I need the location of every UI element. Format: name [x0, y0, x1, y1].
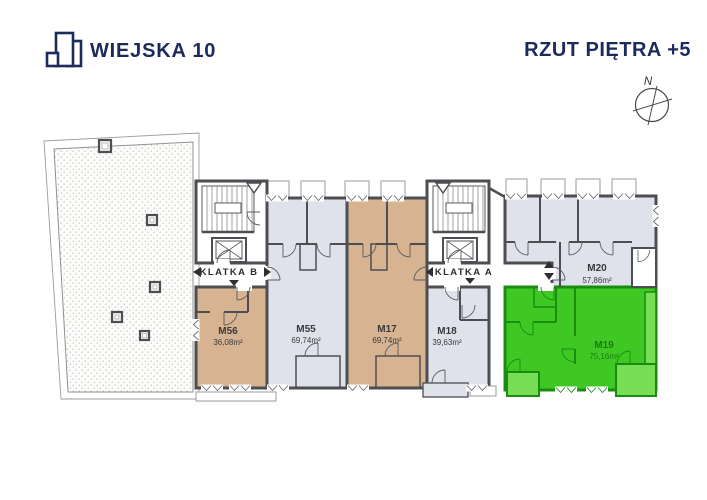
logo-text: WIEJSKA 10 [90, 40, 216, 62]
klatka-b-label: KLATKA B [200, 267, 259, 278]
m18-balcony [423, 383, 468, 397]
north-compass: N [633, 76, 672, 125]
label-m19: M19 [594, 340, 614, 351]
area-m20: 57,86m² [582, 276, 612, 285]
arrow-left-b [193, 267, 201, 277]
page-title: RZUT PIĘTRA +5 [524, 39, 691, 61]
corridor-b: KLATKA B [193, 267, 271, 286]
area-m55: 69,74m² [291, 336, 321, 345]
logo-icon [47, 33, 81, 66]
roof-terrace [44, 133, 199, 399]
floor-plan-page: WIEJSKA 10 RZUT PIĘTRA +5 N [0, 0, 707, 500]
area-m56: 36,08m² [213, 338, 243, 347]
m56-lower-terrace [196, 392, 276, 401]
area-m17: 69,74m² [372, 336, 402, 345]
area-m19: 75,16m² [589, 352, 619, 361]
plan-canvas: WIEJSKA 10 RZUT PIĘTRA +5 N [0, 0, 707, 500]
header: WIEJSKA 10 RZUT PIĘTRA +5 N [47, 33, 691, 125]
arrow-down-a [465, 278, 475, 284]
label-m20: M20 [587, 263, 607, 274]
m20-loggia [632, 248, 656, 287]
north-label: N [644, 76, 653, 88]
label-m18: M18 [437, 326, 457, 337]
label-m17: M17 [377, 324, 397, 335]
label-m55: M55 [296, 324, 316, 335]
label-m56: M56 [218, 326, 238, 337]
area-m18: 39,63m² [432, 338, 462, 347]
terrace-hatch [54, 142, 193, 392]
klatka-a-label: KLATKA A [435, 267, 493, 278]
